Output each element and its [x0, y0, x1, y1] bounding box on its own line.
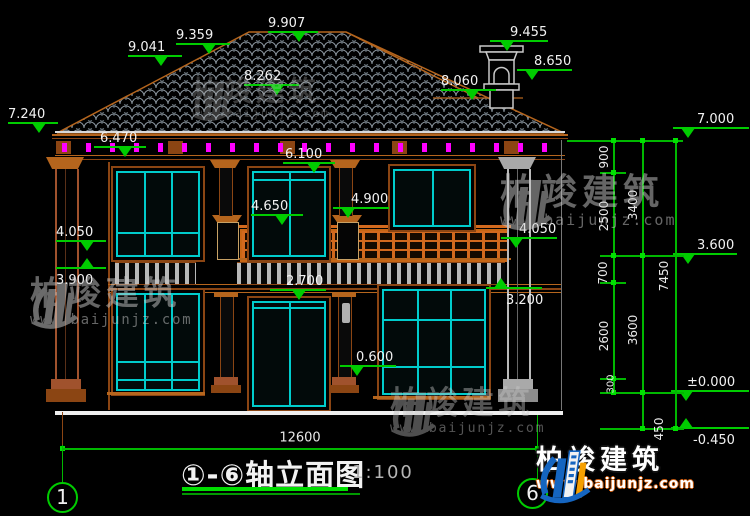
- window-2f-left-frame: [111, 166, 205, 262]
- column-capital-right: [498, 157, 536, 169]
- level-marker: 8.650: [517, 69, 572, 71]
- axis-line-1-upper: [62, 412, 63, 445]
- level-triangle-icon: [292, 32, 306, 42]
- column-capital-left: [46, 157, 84, 169]
- level-marker: 9.455: [490, 40, 548, 42]
- title-underline-thick: [182, 487, 348, 491]
- sill-1f-left: [107, 392, 205, 395]
- watermark: 柏竣建筑 www.baijunjz.com: [30, 278, 192, 328]
- balcony-pillar-cap-left: [212, 215, 242, 222]
- dim-label: 7450: [657, 261, 671, 292]
- level-triangle-icon: [307, 163, 321, 173]
- level-triangle-icon: [341, 208, 355, 218]
- watermark-building-icon: [500, 175, 552, 231]
- level-triangle-icon: [509, 238, 523, 248]
- watermark: 柏竣建筑 www.baijunjz.com: [500, 175, 677, 229]
- level-label: 6.100: [285, 147, 322, 162]
- level-label: 8.650: [534, 54, 571, 69]
- level-triangle-icon: [465, 90, 479, 100]
- window-2f-right-frame: [388, 164, 476, 232]
- level-label: 7.240: [8, 107, 45, 122]
- company-logo: 柏竣建筑 www.baijunjz.com: [536, 446, 695, 492]
- level-label: 6.470: [100, 131, 137, 146]
- window-2f-left: [116, 171, 200, 257]
- dim-label: 2600: [597, 321, 611, 352]
- level-triangle-icon: [80, 258, 94, 268]
- level-label: 9.359: [176, 28, 213, 43]
- level-marker: 7.240: [8, 122, 58, 124]
- level-marker: 9.359: [176, 43, 230, 45]
- level-marker: 3.200: [486, 287, 542, 289]
- window-1f-right: [382, 289, 486, 395]
- level-triangle-icon: [494, 278, 508, 288]
- level-marker: 0.600: [340, 365, 396, 367]
- level-triangle-icon: [202, 44, 216, 54]
- wall-sconce: [342, 303, 350, 323]
- elevation-drawing-viewport: 9.907 9.359 9.041 9.455 8.650 8.262 8.06…: [0, 0, 750, 516]
- drawing-scale: 1:100: [352, 462, 414, 483]
- balcony-pillar-left: [217, 222, 239, 260]
- overall-width-dim-line: [62, 448, 537, 450]
- level-marker: 6.470: [94, 146, 146, 148]
- watermark: 柏竣建筑 www.baijunjz.com: [390, 388, 545, 436]
- pilaster-capital-2f-left: [210, 160, 240, 168]
- level-marker: 4.050: [56, 240, 106, 242]
- dim-label: 450: [652, 418, 666, 441]
- level-label: -0.450: [693, 433, 735, 448]
- level-label: 3.600: [697, 238, 734, 253]
- level-label: 4.650: [251, 199, 288, 214]
- level-label: 9.907: [268, 16, 305, 31]
- dim-label: 3600: [626, 315, 640, 346]
- window-2f-right: [393, 169, 471, 227]
- pilaster-base2-1f-mid: [329, 385, 359, 393]
- level-triangle-icon: [292, 290, 306, 300]
- pilaster-1f-left: [220, 297, 234, 377]
- level-triangle-icon: [500, 41, 514, 51]
- level-marker: 8.060: [441, 89, 496, 91]
- pilaster-base-1f-left: [214, 377, 238, 385]
- dim-label: 900: [597, 146, 611, 169]
- level-marker: 3.900: [56, 267, 106, 269]
- axis-line-1: [62, 445, 63, 482]
- level-marker: 4.900: [333, 207, 389, 209]
- level-triangle-icon: [679, 418, 693, 428]
- frieze-under-balcony: [237, 262, 505, 285]
- pilaster-base2-1f-left: [211, 385, 241, 393]
- level-marker: 9.907: [268, 31, 318, 33]
- level-label: 2.700: [286, 274, 323, 289]
- level-label: 4.900: [351, 192, 388, 207]
- level-triangle-icon: [154, 56, 168, 66]
- level-triangle-icon: [350, 366, 364, 376]
- dim-ext-line: [567, 140, 683, 142]
- level-label: ±0.000: [687, 375, 735, 390]
- pilaster-2f-left: [219, 168, 233, 216]
- watermark-building-icon: [390, 388, 436, 437]
- level-marker: 4.050: [501, 237, 557, 239]
- watermark-building-icon: [192, 78, 233, 122]
- level-marker: 6.100: [283, 162, 335, 164]
- level-marker: 4.650: [251, 214, 303, 216]
- balcony-pillar-mid: [337, 222, 359, 260]
- logo-building-icon: [536, 446, 592, 504]
- level-label: 4.050: [56, 225, 93, 240]
- entry-door: [252, 301, 326, 407]
- level-label: 9.455: [510, 25, 547, 40]
- level-label: 3.200: [506, 293, 543, 308]
- pilaster-base-1f-mid: [332, 377, 356, 385]
- level-triangle-icon: [275, 215, 289, 225]
- level-marker: 9.041: [128, 55, 182, 57]
- title-underline-thin: [182, 493, 360, 495]
- level-triangle-icon: [681, 128, 695, 138]
- level-marker: 2.700: [270, 289, 326, 291]
- level-label: 8.060: [441, 74, 478, 89]
- dim-label: 300: [606, 374, 617, 393]
- window-1f-right-frame: [377, 284, 491, 400]
- watermark: 柏竣建筑 www.baijunjz.com: [192, 78, 330, 120]
- level-triangle-icon: [80, 241, 94, 251]
- level-label: 7.000: [697, 112, 734, 127]
- level-marker: 7.000: [673, 127, 749, 129]
- level-triangle-icon: [32, 123, 46, 133]
- level-triangle-icon: [118, 147, 132, 157]
- level-label: 0.600: [356, 350, 393, 365]
- level-triangle-icon: [525, 70, 539, 80]
- axis-bubble-1: 1: [47, 482, 78, 513]
- level-label: 9.041: [128, 40, 165, 55]
- column-left-base2: [46, 389, 86, 402]
- dim-label: 700: [596, 262, 610, 285]
- column-left-base1: [51, 379, 81, 389]
- overall-width-label: 12600: [279, 431, 320, 446]
- watermark-building-icon: [30, 278, 78, 330]
- entry-door-frame: [247, 296, 331, 412]
